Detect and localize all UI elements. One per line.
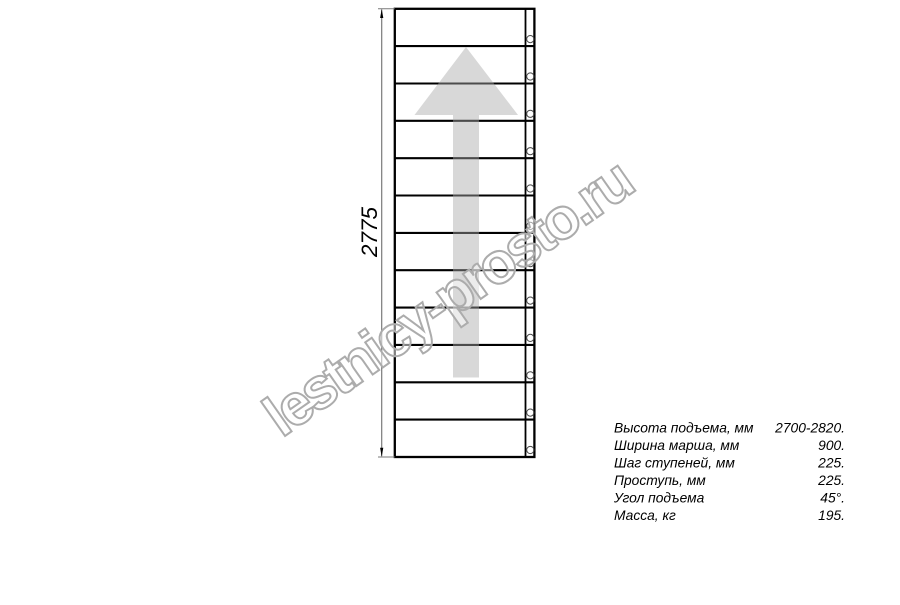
svg-text:45°.: 45°. [820,491,845,506]
svg-text:225.: 225. [817,456,845,471]
svg-text:Угол подъема: Угол подъема [613,491,705,506]
svg-text:Ширина марша, мм: Ширина марша, мм [614,438,740,453]
svg-text:Проступь, мм: Проступь, мм [614,473,706,488]
svg-text:900.: 900. [818,438,845,453]
svg-text:195.: 195. [818,508,845,523]
svg-text:Шаг ступеней, мм: Шаг ступеней, мм [614,456,735,471]
svg-text:2700-2820.: 2700-2820. [774,421,845,436]
svg-text:Высота подъема, мм: Высота подъема, мм [614,421,754,436]
svg-text:2775: 2775 [357,206,382,258]
svg-text:Масса, кг: Масса, кг [614,508,676,523]
svg-text:225.: 225. [817,473,845,488]
